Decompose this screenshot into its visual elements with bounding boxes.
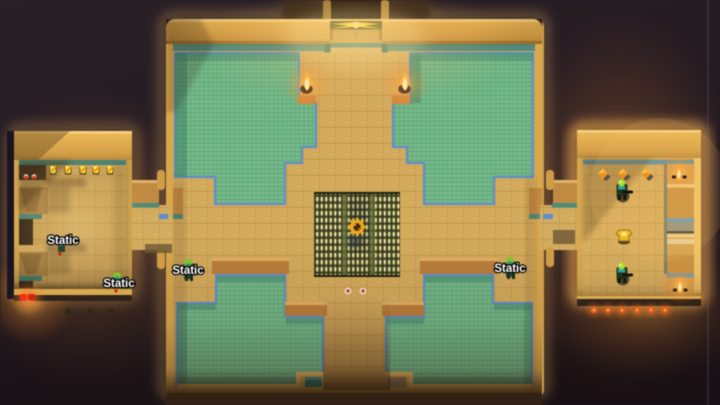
svg-text:Static: Static (172, 265, 204, 277)
svg-text:Static: Static (47, 235, 79, 247)
svg-text:Static: Static (494, 263, 526, 275)
svg-text:Static: Static (103, 278, 135, 290)
